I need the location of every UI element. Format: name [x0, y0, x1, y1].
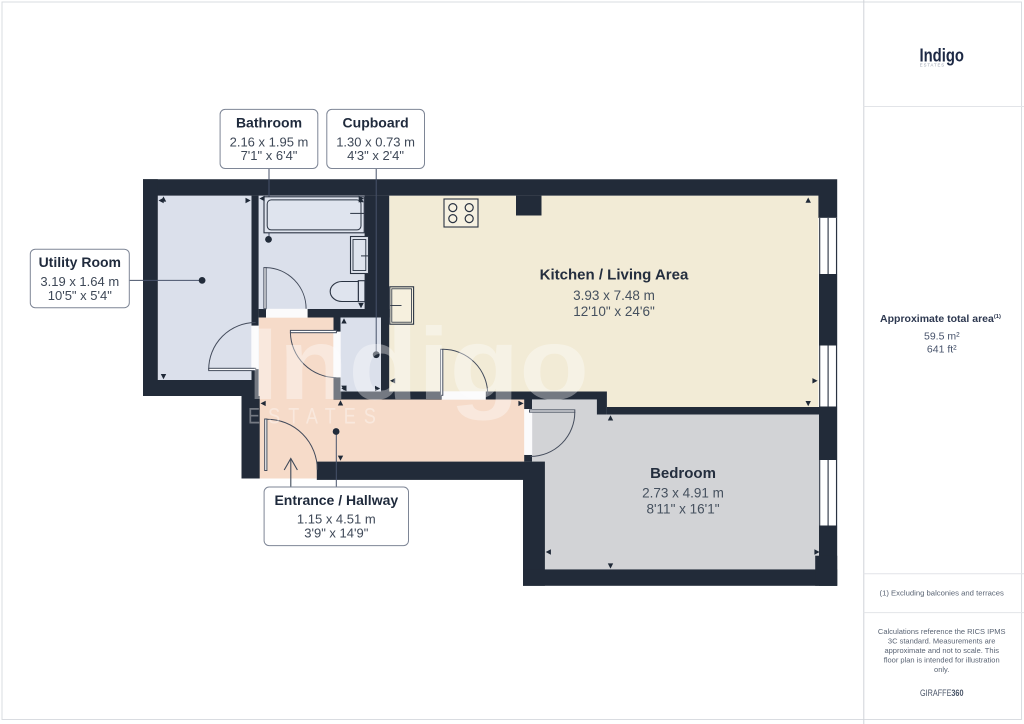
svg-text:641 ft²: 641 ft²	[927, 344, 957, 356]
svg-text:2.73 x 4.91 m: 2.73 x 4.91 m	[642, 485, 724, 500]
svg-text:Cupboard: Cupboard	[343, 115, 409, 131]
svg-text:Calculations reference the RIC: Calculations reference the RICS IPMS	[878, 627, 1006, 636]
svg-text:3C standard. Measurements are: 3C standard. Measurements are	[888, 636, 996, 645]
svg-text:only.: only.	[934, 665, 949, 674]
svg-text:ESTATES: ESTATES	[248, 404, 384, 429]
svg-text:Bedroom: Bedroom	[650, 465, 716, 482]
svg-text:(1) Excluding balconies and te: (1) Excluding balconies and terraces	[880, 589, 1005, 598]
svg-text:approximate and not to scale.: approximate and not to scale. This	[884, 646, 999, 655]
svg-text:8'11" x 16'1": 8'11" x 16'1"	[646, 501, 719, 516]
svg-text:ESTATES: ESTATES	[920, 62, 945, 67]
svg-text:GIRAFFE360: GIRAFFE360	[920, 688, 964, 699]
svg-text:3.19 x 1.64 m: 3.19 x 1.64 m	[40, 274, 119, 289]
svg-text:59.5 m²: 59.5 m²	[924, 330, 960, 342]
svg-text:3.93 x 7.48 m: 3.93 x 7.48 m	[573, 288, 655, 303]
svg-text:3'9" x 14'9": 3'9" x 14'9"	[304, 526, 368, 541]
svg-text:7'1" x 6'4": 7'1" x 6'4"	[241, 148, 298, 163]
svg-text:Approximate total area(1): Approximate total area(1)	[880, 313, 1001, 325]
svg-text:Bathroom: Bathroom	[236, 115, 302, 131]
svg-text:1.15 x 4.51 m: 1.15 x 4.51 m	[297, 512, 376, 527]
svg-text:Kitchen / Living Area: Kitchen / Living Area	[540, 267, 689, 284]
svg-text:Utility Room: Utility Room	[39, 254, 121, 270]
svg-text:Entrance / Hallway: Entrance / Hallway	[274, 492, 398, 508]
svg-text:floor plan is intended for ill: floor plan is intended for illustration	[884, 656, 1000, 665]
svg-text:10'5" x 5'4": 10'5" x 5'4"	[48, 288, 112, 303]
svg-text:4'3" x 2'4": 4'3" x 2'4"	[347, 148, 404, 163]
